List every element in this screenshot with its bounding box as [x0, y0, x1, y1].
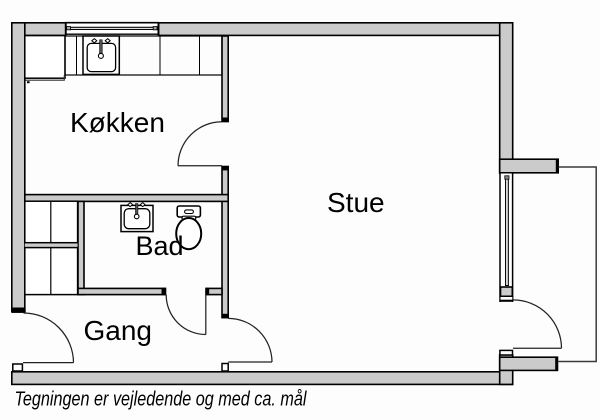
svg-text:Bad: Bad [136, 231, 184, 261]
svg-text:Tegningen er vejledende og med: Tegningen er vejledende og med ca. mål [15, 388, 308, 411]
svg-text:Køkken: Køkken [70, 107, 165, 138]
svg-text:Stue: Stue [327, 187, 385, 218]
svg-text:Gang: Gang [84, 315, 153, 346]
